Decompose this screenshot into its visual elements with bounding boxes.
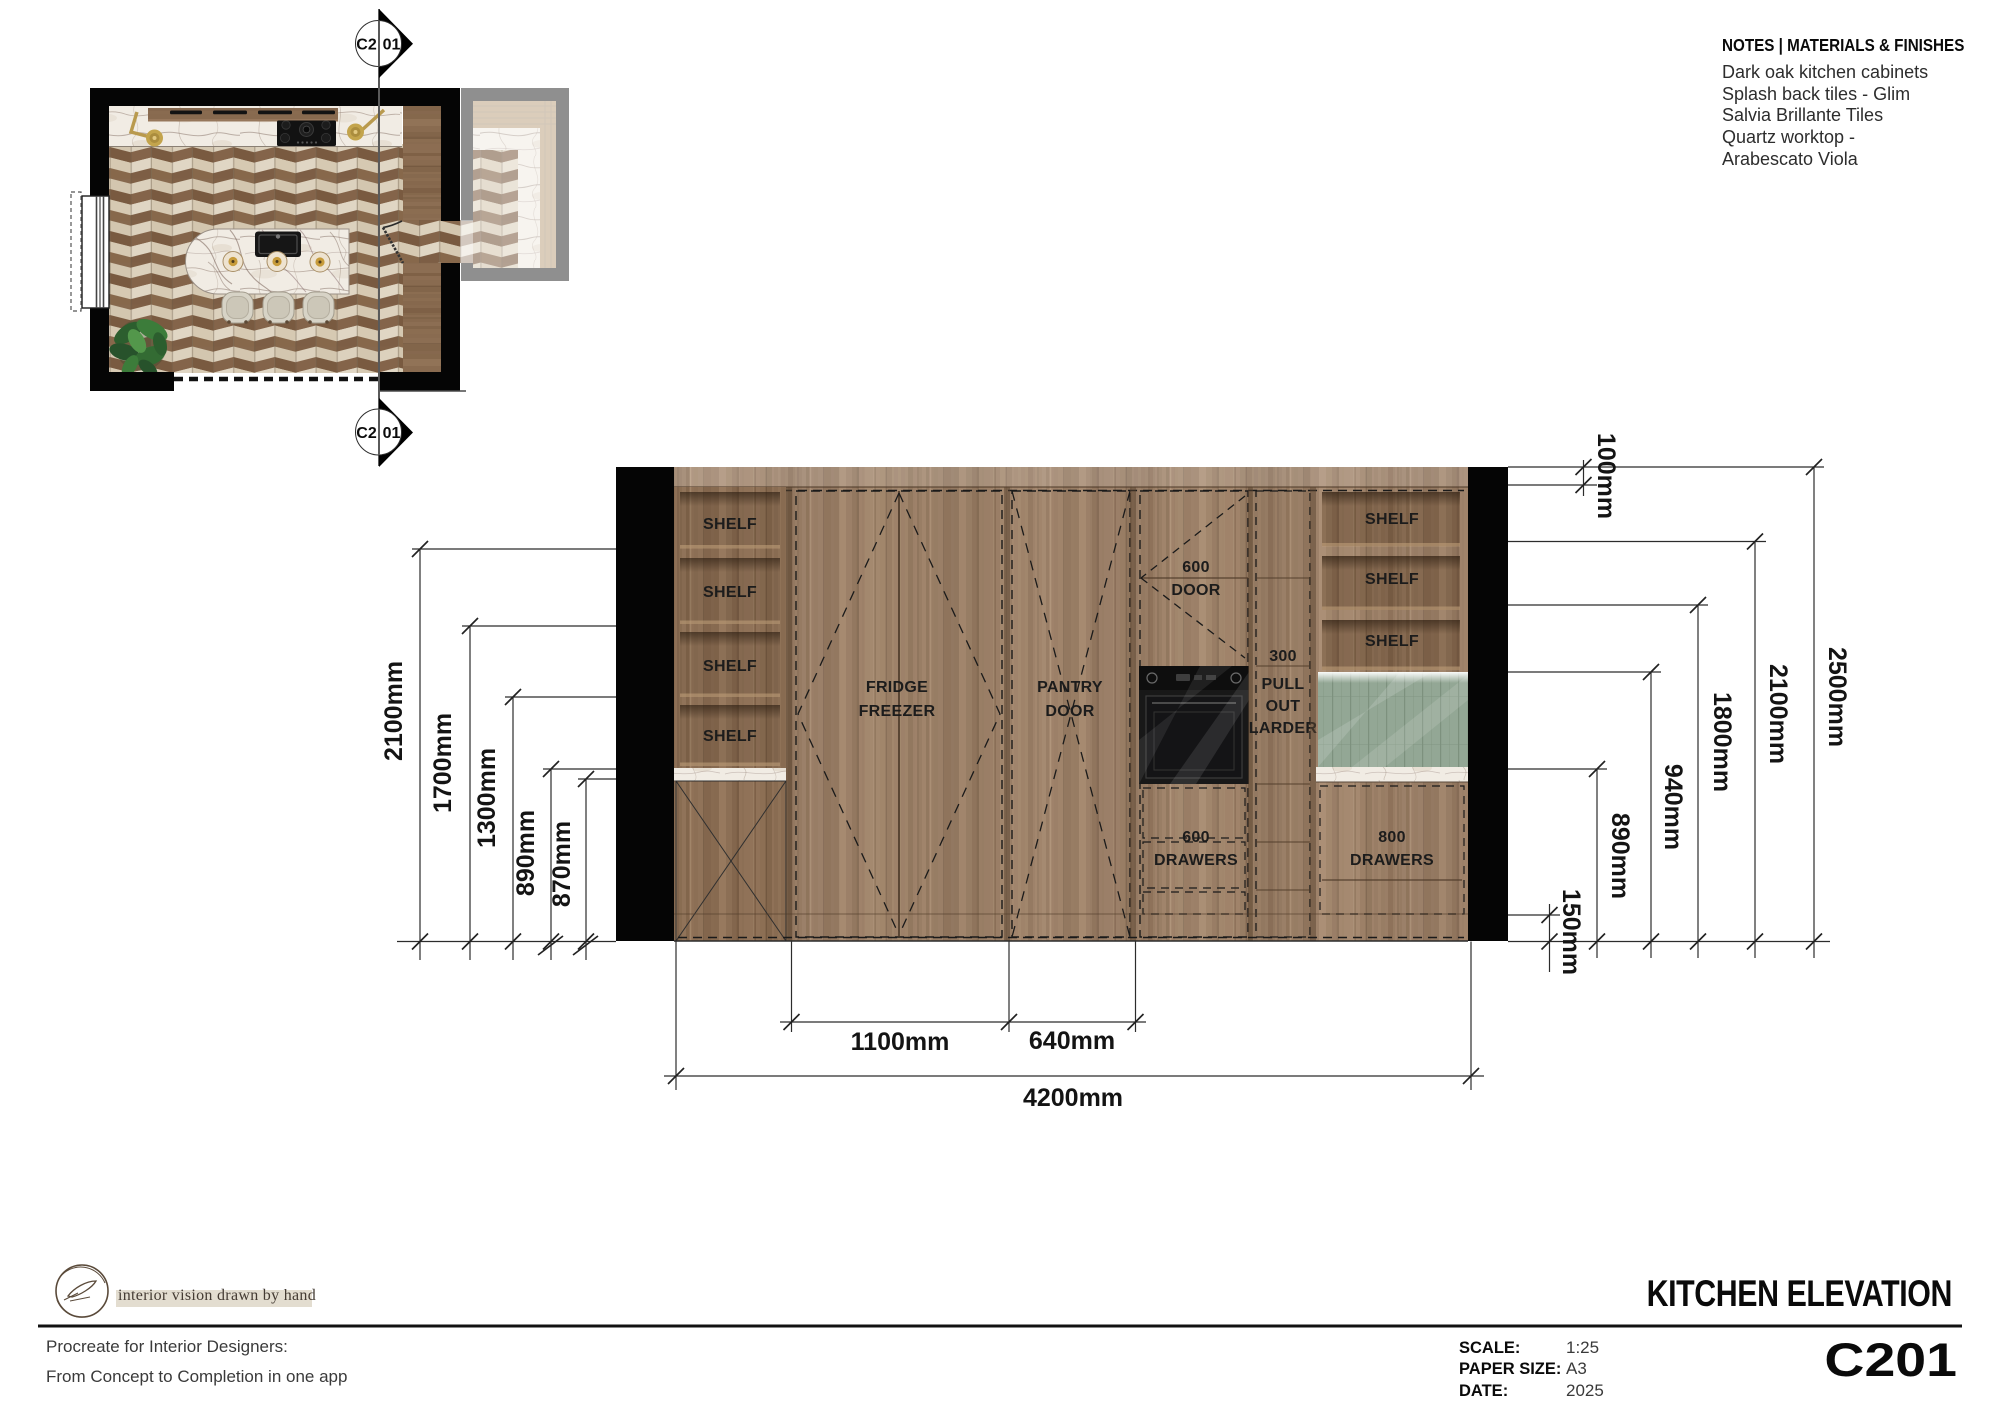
svg-text:01: 01 [383,37,401,54]
svg-text:interior vision drawn by hand: interior vision drawn by hand [118,1287,316,1304]
svg-text:From Concept to Completion in: From Concept to Completion in one app [46,1367,347,1386]
svg-text:4200mm: 4200mm [1023,1084,1123,1112]
svg-text:NOTES | MATERIALS & FINISHES: NOTES | MATERIALS & FINISHES [1722,36,1964,55]
svg-text:LARDER: LARDER [1249,720,1318,737]
svg-text:Procreate for Interior Designe: Procreate for Interior Designers: [46,1337,288,1356]
svg-text:C2: C2 [356,425,377,442]
svg-text:DOOR: DOOR [1045,703,1094,720]
svg-text:1:25: 1:25 [1566,1338,1599,1357]
svg-text:SHELF: SHELF [1365,571,1419,588]
svg-text:DOOR: DOOR [1171,582,1220,599]
svg-text:SHELF: SHELF [1365,511,1419,528]
svg-text:A3: A3 [1566,1359,1587,1378]
svg-text:940mm: 940mm [1659,764,1687,850]
svg-text:800: 800 [1378,829,1406,846]
svg-text:2500mm: 2500mm [1823,647,1851,747]
svg-text:2100mm: 2100mm [380,661,408,761]
svg-text:2100mm: 2100mm [1764,664,1792,764]
svg-text:2025: 2025 [1566,1381,1604,1400]
svg-text:100mm: 100mm [1592,433,1620,519]
svg-text:150mm: 150mm [1557,889,1585,975]
svg-text:C201: C201 [1824,1333,1957,1386]
svg-text:870mm: 870mm [548,821,576,907]
svg-text:SHELF: SHELF [703,584,757,601]
svg-text:OUT: OUT [1266,698,1301,715]
svg-text:300: 300 [1269,648,1297,665]
svg-text:SHELF: SHELF [703,516,757,533]
svg-text:Splash back tiles - Glim: Splash back tiles - Glim [1722,84,1910,104]
svg-text:890mm: 890mm [1606,813,1634,899]
svg-text:1300mm: 1300mm [473,748,501,848]
svg-text:1700mm: 1700mm [429,713,457,813]
svg-text:1100mm: 1100mm [851,1028,950,1056]
svg-text:C2: C2 [356,37,377,54]
svg-text:890mm: 890mm [512,810,540,896]
svg-text:DATE:: DATE: [1459,1382,1508,1400]
svg-text:PULL: PULL [1262,676,1305,693]
svg-text:FRIDGE: FRIDGE [866,679,928,696]
svg-text:Salvia Brillante Tiles: Salvia Brillante Tiles [1722,105,1883,125]
svg-text:DRAWERS: DRAWERS [1154,852,1238,869]
svg-text:FREEZER: FREEZER [859,703,936,720]
svg-text:KITCHEN ELEVATION: KITCHEN ELEVATION [1647,1273,1952,1315]
svg-text:SCALE:: SCALE: [1459,1339,1520,1357]
svg-text:600: 600 [1182,559,1210,576]
svg-text:600: 600 [1182,829,1210,846]
svg-text:DRAWERS: DRAWERS [1350,852,1434,869]
svg-text:1800mm: 1800mm [1708,692,1736,792]
svg-text:Dark oak kitchen cabinets: Dark oak kitchen cabinets [1722,62,1928,82]
svg-text:SHELF: SHELF [1365,633,1419,650]
svg-text:PAPER SIZE:: PAPER SIZE: [1459,1360,1561,1378]
svg-text:PANTRY: PANTRY [1037,679,1103,696]
svg-text:01: 01 [383,425,401,442]
svg-text:Arabescato Viola: Arabescato Viola [1722,149,1859,169]
svg-text:SHELF: SHELF [703,728,757,745]
svg-text:SHELF: SHELF [703,658,757,675]
svg-text:Quartz worktop -: Quartz worktop - [1722,127,1855,147]
svg-text:640mm: 640mm [1029,1027,1115,1055]
